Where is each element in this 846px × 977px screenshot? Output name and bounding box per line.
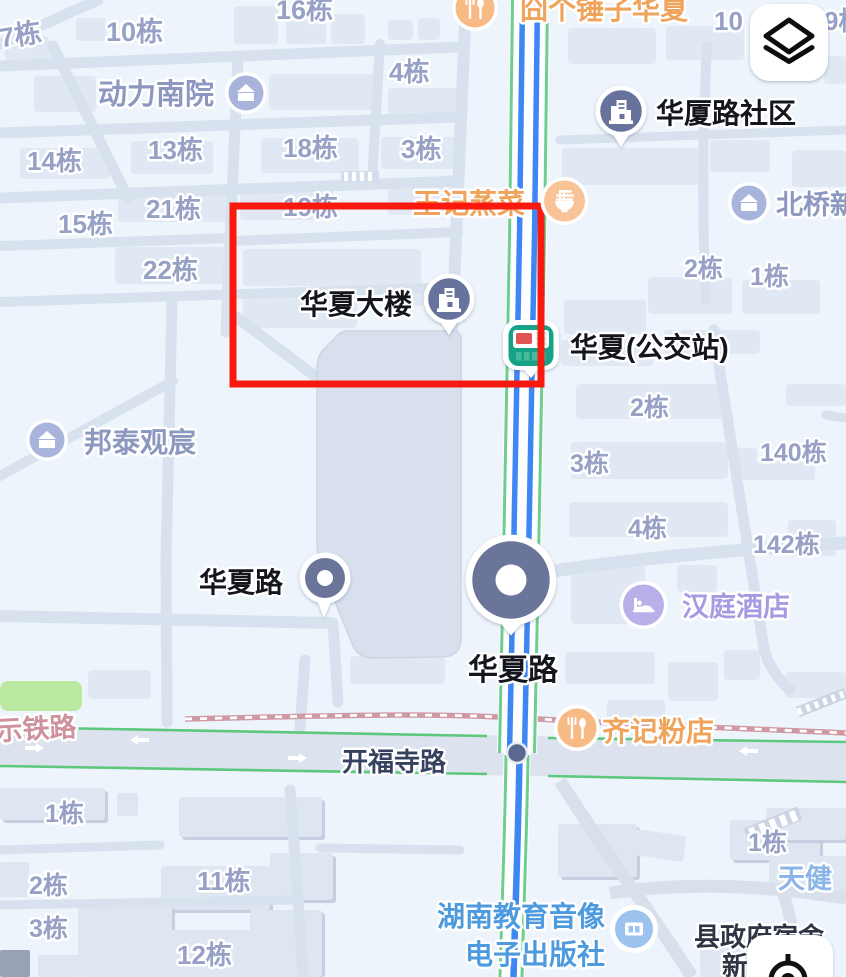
svg-text:北桥新: 北桥新 [776,189,846,220]
svg-text:13栋: 13栋 [148,135,203,165]
svg-text:湖南教育音像: 湖南教育音像 [437,900,606,932]
svg-text:邦泰观宸: 邦泰观宸 [84,426,197,458]
svg-text:囧个锤子华夏: 囧个锤子华夏 [520,0,689,25]
svg-text:1栋: 1栋 [750,262,789,291]
svg-text:华厦路社区: 华厦路社区 [656,97,796,129]
svg-text:21栋: 21栋 [146,194,201,224]
svg-text:齐记粉店: 齐记粉店 [602,716,714,747]
svg-text:18栋: 18栋 [283,133,338,163]
svg-text:14栋: 14栋 [27,146,82,176]
svg-text:22栋: 22栋 [143,255,198,285]
svg-text:10栋: 10栋 [106,16,163,47]
svg-text:4栋: 4栋 [628,514,667,543]
svg-text:2栋: 2栋 [630,393,669,422]
svg-text:12栋: 12栋 [177,940,232,970]
svg-text:天健: 天健 [778,864,832,894]
svg-text:140栋: 140栋 [760,438,827,467]
svg-text:15栋: 15栋 [58,209,113,239]
svg-text:11栋: 11栋 [197,866,251,896]
svg-text:7栋: 7栋 [0,16,44,53]
svg-text:10: 10 [714,6,743,36]
svg-text:2栋: 2栋 [29,871,68,900]
svg-text:华夏路: 华夏路 [199,566,284,598]
svg-text:新: 新 [722,951,748,977]
svg-text:开福寺路: 开福寺路 [342,747,447,777]
svg-text:示铁路: 示铁路 [0,711,78,746]
svg-text:16栋: 16栋 [276,0,333,25]
svg-text:华夏(公交站): 华夏(公交站) [570,331,729,363]
svg-text:1栋: 1栋 [748,828,787,857]
svg-text:华夏路: 华夏路 [468,654,559,687]
svg-text:电子出版社: 电子出版社 [465,939,605,970]
svg-text:3栋: 3栋 [570,449,609,478]
svg-text:华夏大楼: 华夏大楼 [300,288,412,320]
svg-text:汉庭酒店: 汉庭酒店 [682,591,790,622]
svg-text:142栋: 142栋 [753,530,820,559]
svg-text:动力南院: 动力南院 [98,77,214,111]
svg-text:3栋: 3栋 [29,914,68,943]
svg-text:4栋: 4栋 [389,57,429,87]
svg-text:1栋: 1栋 [45,799,84,828]
svg-text:2栋: 2栋 [684,254,723,283]
svg-text:3栋: 3栋 [401,134,441,164]
